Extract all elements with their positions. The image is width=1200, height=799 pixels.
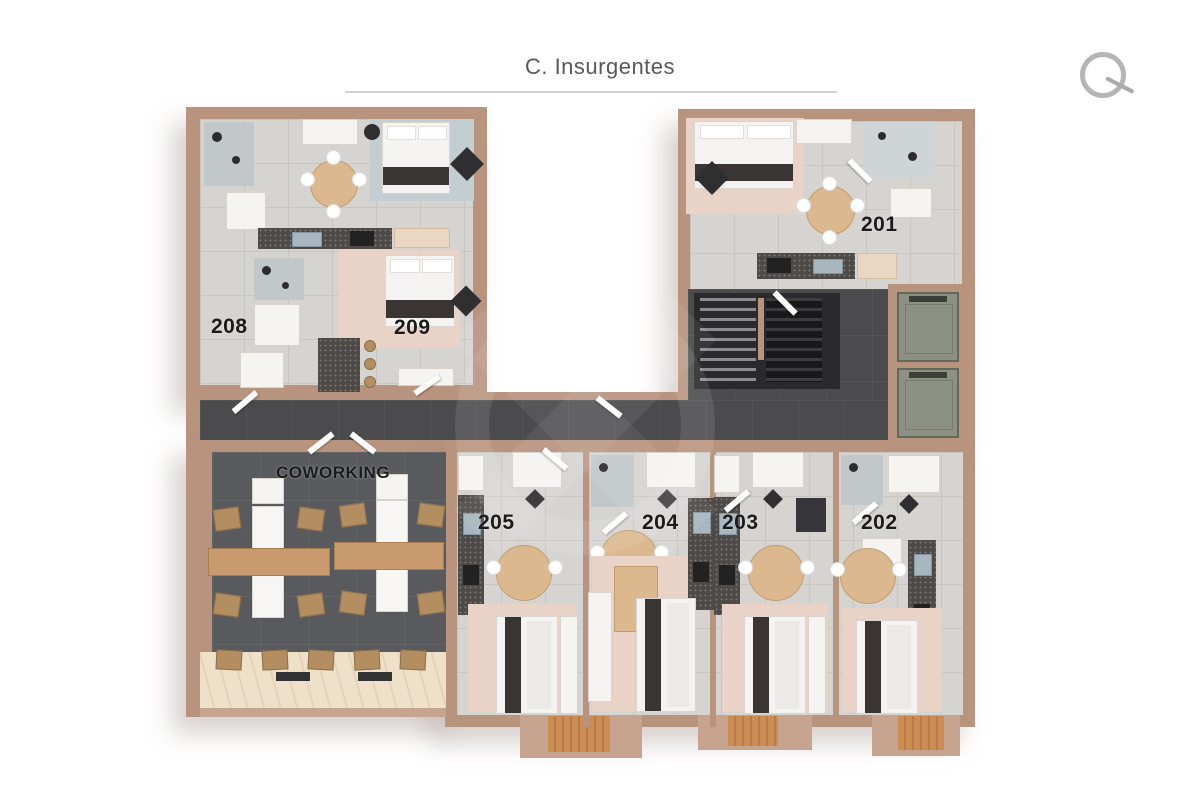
dining-table xyxy=(748,545,804,601)
bathroom xyxy=(591,455,633,507)
stool xyxy=(353,649,380,670)
closet xyxy=(226,192,266,230)
terrace-bar xyxy=(276,672,310,681)
unit-label-202: 202 xyxy=(861,511,921,535)
chair xyxy=(352,172,367,187)
bed xyxy=(496,616,558,714)
stool xyxy=(399,649,426,670)
unit-label-205: 205 xyxy=(478,511,538,535)
dining-table xyxy=(840,548,896,604)
closet xyxy=(240,352,284,388)
desk xyxy=(752,452,804,488)
fridge xyxy=(714,455,740,493)
unit-label-203: 203 xyxy=(722,511,782,535)
floor-plan-page: C. Insurgentes xyxy=(0,0,1200,799)
chair xyxy=(339,502,368,527)
desk xyxy=(888,455,940,493)
stair-flight xyxy=(700,298,756,382)
chair xyxy=(548,560,563,575)
sofa xyxy=(588,592,612,702)
unit-label-201: 201 xyxy=(861,213,921,237)
elevator-indicator xyxy=(909,372,947,378)
chair xyxy=(796,198,811,213)
street-divider-line xyxy=(345,91,837,93)
chair xyxy=(417,590,446,615)
kitchen-island xyxy=(318,338,360,392)
coworking-label: COWORKING xyxy=(276,463,416,483)
chair xyxy=(850,198,865,213)
chair xyxy=(326,204,341,219)
kitchen-counter xyxy=(394,228,450,248)
balcony-deck xyxy=(548,716,610,752)
bathroom xyxy=(841,455,883,505)
chair xyxy=(326,150,341,165)
unit-label-209: 209 xyxy=(394,316,454,340)
chair xyxy=(830,562,845,577)
coworking-desk xyxy=(208,548,330,576)
chair xyxy=(417,502,446,527)
chair xyxy=(800,560,815,575)
stairwell xyxy=(694,293,840,389)
kitchen-counter xyxy=(757,253,855,279)
desk xyxy=(646,452,696,488)
kitchen-counter xyxy=(857,253,897,279)
dining-table xyxy=(806,186,855,235)
bed xyxy=(856,620,918,714)
fridge xyxy=(458,455,484,491)
chair xyxy=(213,592,242,617)
coworking-desk xyxy=(334,542,444,570)
balcony-deck xyxy=(898,716,944,750)
kitchen-counter xyxy=(258,228,392,249)
elevator-2 xyxy=(897,368,959,438)
terrace-edge xyxy=(200,708,446,717)
bed xyxy=(744,616,806,714)
stair-divider xyxy=(758,298,764,360)
tv-cabinet xyxy=(796,498,826,532)
corridor-floor xyxy=(200,400,958,440)
sofa xyxy=(302,119,358,145)
chair xyxy=(297,506,326,531)
chair xyxy=(297,592,326,617)
chair xyxy=(339,590,368,615)
chair xyxy=(300,172,315,187)
stool xyxy=(215,649,242,670)
partition-wall xyxy=(833,440,839,727)
sofa xyxy=(796,119,852,144)
bathroom xyxy=(254,258,304,300)
elevator-cab xyxy=(905,304,953,354)
bed xyxy=(382,122,450,194)
chair xyxy=(892,562,907,577)
elevator-indicator xyxy=(909,296,947,302)
dining-table xyxy=(496,545,552,601)
bathroom xyxy=(204,122,254,186)
wardrobe xyxy=(560,616,578,714)
chair xyxy=(738,560,753,575)
unit-label-208: 208 xyxy=(211,315,271,339)
street-label: C. Insurgentes xyxy=(0,54,1200,80)
stool xyxy=(364,340,376,352)
wardrobe xyxy=(808,616,826,714)
dining-table xyxy=(310,160,358,208)
stool xyxy=(261,649,288,670)
unit-label-204: 204 xyxy=(642,511,702,535)
elevator-1 xyxy=(897,292,959,362)
stool xyxy=(364,376,376,388)
chair xyxy=(486,560,501,575)
north-indicator-icon xyxy=(1080,52,1126,98)
balcony-deck xyxy=(728,716,778,746)
elevator-cab xyxy=(905,380,953,430)
chair xyxy=(822,230,837,245)
chair xyxy=(822,176,837,191)
stool xyxy=(307,649,334,670)
bed xyxy=(636,598,696,712)
stool xyxy=(364,358,376,370)
terrace-bar xyxy=(358,672,392,681)
chair xyxy=(213,506,242,531)
bathroom xyxy=(864,122,934,178)
